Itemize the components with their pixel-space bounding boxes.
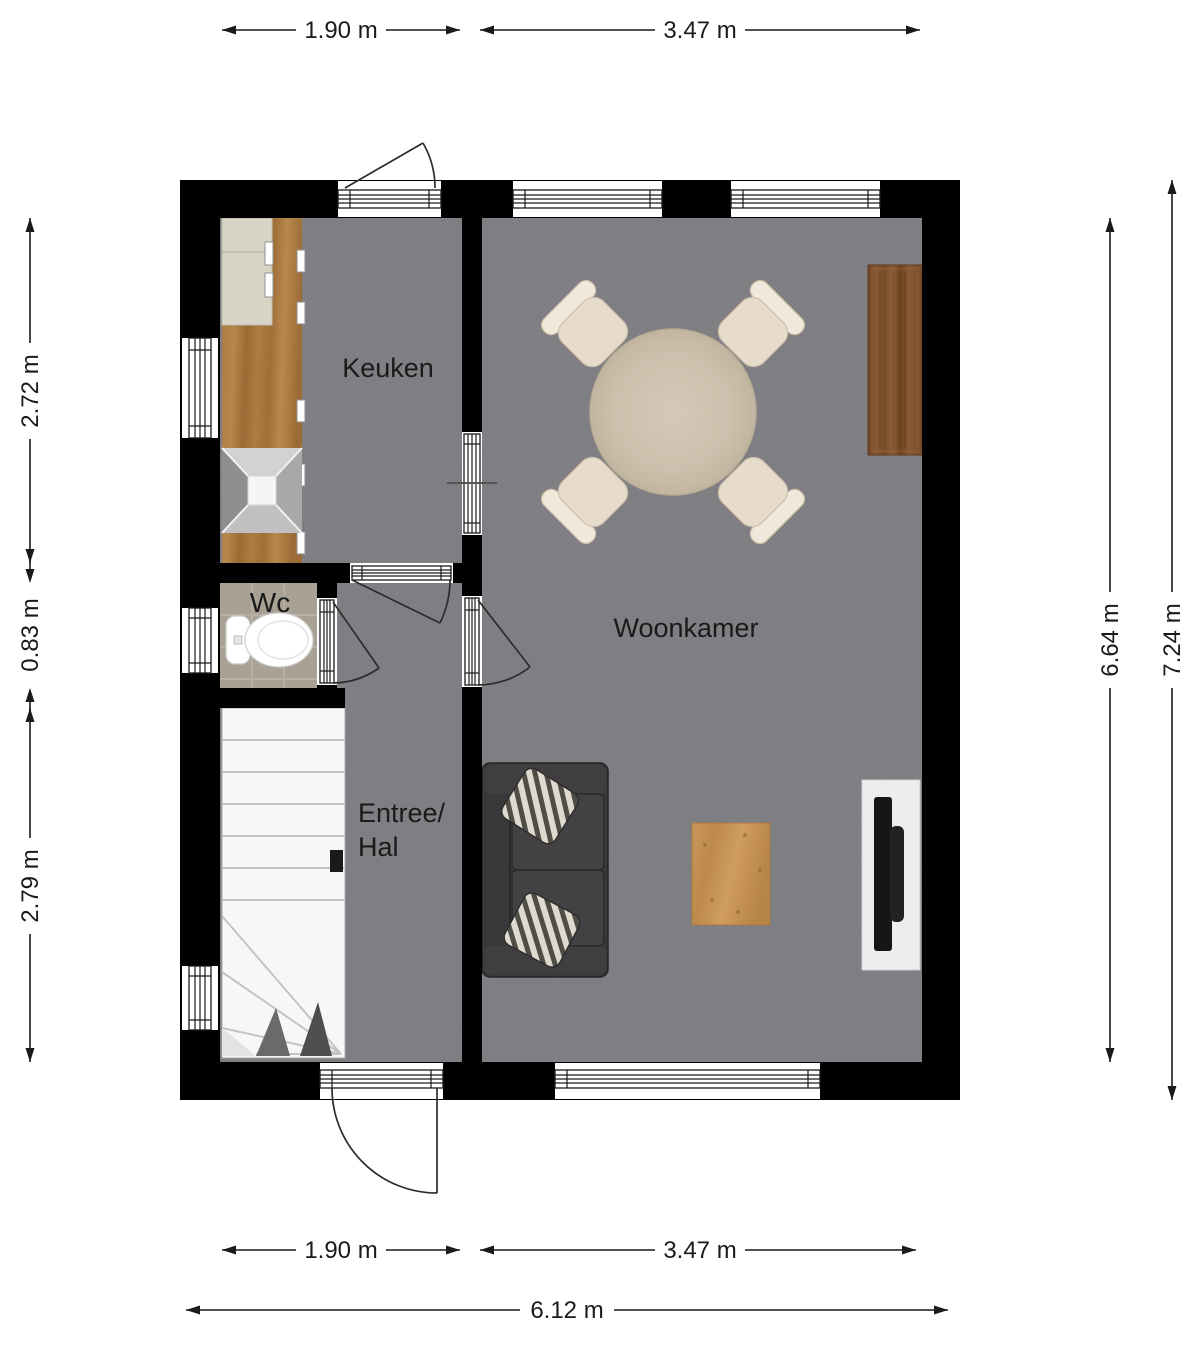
window <box>182 608 218 673</box>
tv <box>874 797 892 951</box>
room-label-woonkamer: Woonkamer <box>613 613 758 643</box>
room-label-hal: Hal <box>358 832 399 862</box>
svg-text:1.90 m: 1.90 m <box>304 1237 377 1264</box>
svg-text:3.47 m: 3.47 m <box>663 17 736 44</box>
svg-text:1.90 m: 1.90 m <box>304 17 377 44</box>
floor-plan-page: Keuken Woonkamer Wc Entree/ Hal 1.90 m 3… <box>0 0 1202 1350</box>
toilet-flush-button <box>234 636 242 644</box>
dimension-left-1: 2.72 m <box>17 218 44 563</box>
window <box>182 966 218 1030</box>
dimension-left-2: 0.83 m <box>17 552 44 719</box>
dimension-left-3: 2.79 m <box>17 708 44 1062</box>
svg-text:6.12 m: 6.12 m <box>530 1297 603 1324</box>
dimension-bottom-1: 1.90 m <box>222 1237 460 1264</box>
svg-text:2.79 m: 2.79 m <box>17 849 44 922</box>
stair-newel-post <box>330 850 343 872</box>
room-label-wc: Wc <box>250 587 290 618</box>
tv-mount <box>890 826 904 922</box>
toilet <box>226 613 313 667</box>
sofa <box>482 763 608 977</box>
interior-wall-wc-stairs <box>220 688 345 708</box>
dimension-bottom-2: 3.47 m <box>480 1237 916 1264</box>
door-swing-arc <box>332 1088 437 1193</box>
coffee-table <box>692 823 770 925</box>
window <box>513 181 662 217</box>
tv-cabinet <box>862 780 920 970</box>
dimension-top-1: 1.90 m <box>222 17 460 44</box>
dimension-top-2: 3.47 m <box>480 17 920 44</box>
staircase <box>222 708 345 1058</box>
svg-text:2.72 m: 2.72 m <box>17 354 44 427</box>
exterior-wall-right <box>922 180 960 1100</box>
room-label-keuken: Keuken <box>342 353 434 383</box>
dimension-bottom-3: 6.12 m <box>186 1297 948 1324</box>
window <box>182 338 218 438</box>
entrance-door <box>320 1063 443 1193</box>
svg-text:3.47 m: 3.47 m <box>663 1237 736 1264</box>
kitchen-sink-unit <box>222 448 302 533</box>
dimension-right-2: 7.24 m <box>1159 180 1186 1100</box>
kitchen-counter <box>222 218 305 563</box>
svg-text:6.64 m: 6.64 m <box>1097 603 1124 676</box>
kitchen-appliance-block <box>222 218 272 325</box>
staircase-body <box>222 708 345 1058</box>
room-label-entree: Entree/ <box>358 798 446 828</box>
sideboard <box>868 265 922 455</box>
window <box>731 181 880 217</box>
svg-text:7.24 m: 7.24 m <box>1159 603 1186 676</box>
svg-text:0.83 m: 0.83 m <box>17 598 44 671</box>
floor-plan-drawing: Keuken Woonkamer Wc Entree/ Hal 1.90 m 3… <box>0 0 1202 1350</box>
dimension-right-1: 6.64 m <box>1097 218 1124 1062</box>
window <box>555 1063 820 1099</box>
dining-table <box>590 329 756 495</box>
